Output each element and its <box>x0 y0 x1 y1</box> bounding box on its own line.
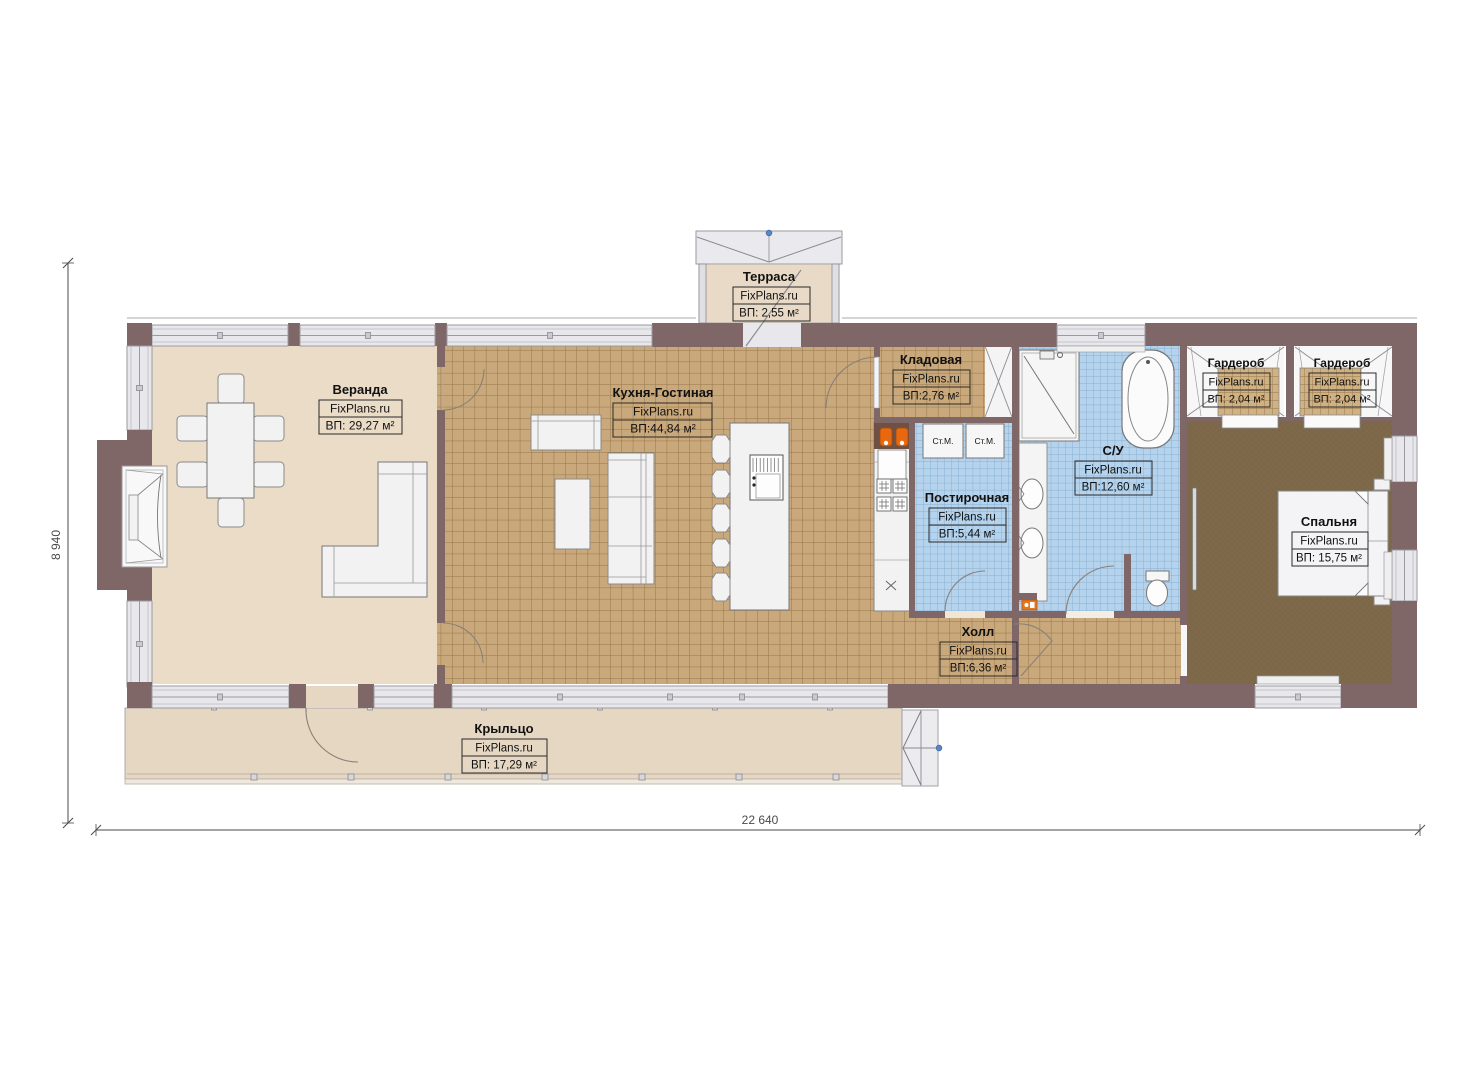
svg-text:ВП:44,84 м²: ВП:44,84 м² <box>630 422 696 436</box>
svg-text:Терраса: Терраса <box>743 269 796 284</box>
svg-text:Крыльцо: Крыльцо <box>474 721 533 736</box>
svg-text:FixPlans.ru: FixPlans.ru <box>330 402 390 416</box>
svg-text:ВП:2,76 м²: ВП:2,76 м² <box>903 391 960 403</box>
svg-text:Гардероб: Гардероб <box>1314 356 1371 370</box>
svg-text:Спальня: Спальня <box>1301 514 1357 529</box>
svg-text:ВП: 2,04 м²: ВП: 2,04 м² <box>1313 394 1370 406</box>
svg-text:FixPlans.ru: FixPlans.ru <box>1300 536 1358 548</box>
svg-text:Кухня-Гостиная: Кухня-Гостиная <box>612 385 713 400</box>
svg-text:FixPlans.ru: FixPlans.ru <box>1208 377 1263 389</box>
svg-text:FixPlans.ru: FixPlans.ru <box>1314 377 1369 389</box>
svg-text:FixPlans.ru: FixPlans.ru <box>902 374 960 386</box>
svg-text:FixPlans.ru: FixPlans.ru <box>938 512 996 524</box>
svg-text:ВП: 17,29 м²: ВП: 17,29 м² <box>471 760 537 772</box>
svg-text:8 940: 8 940 <box>49 530 63 560</box>
svg-text:С/У: С/У <box>1102 443 1124 458</box>
svg-text:Кладовая: Кладовая <box>900 352 962 367</box>
svg-text:Гардероб: Гардероб <box>1208 356 1265 370</box>
svg-text:FixPlans.ru: FixPlans.ru <box>633 405 693 419</box>
svg-text:Веранда: Веранда <box>332 382 388 397</box>
svg-text:Ст.М.: Ст.М. <box>933 436 954 446</box>
svg-text:Холл: Холл <box>962 624 995 639</box>
svg-text:ВП: 2,04 м²: ВП: 2,04 м² <box>1207 394 1264 406</box>
svg-text:ВП: 2,55 м²: ВП: 2,55 м² <box>739 308 799 320</box>
svg-text:Ст.М.: Ст.М. <box>975 436 996 446</box>
svg-text:ВП:12,60 м²: ВП:12,60 м² <box>1082 482 1145 494</box>
svg-text:FixPlans.ru: FixPlans.ru <box>475 743 533 755</box>
svg-text:ВП:5,44 м²: ВП:5,44 м² <box>939 529 996 541</box>
svg-text:ВП: 15,75 м²: ВП: 15,75 м² <box>1296 553 1362 565</box>
svg-text:FixPlans.ru: FixPlans.ru <box>740 291 798 303</box>
svg-text:22 640: 22 640 <box>742 813 779 827</box>
svg-text:ВП: 29,27 м²: ВП: 29,27 м² <box>326 419 395 433</box>
svg-text:FixPlans.ru: FixPlans.ru <box>1084 465 1142 477</box>
svg-text:FixPlans.ru: FixPlans.ru <box>949 646 1007 658</box>
svg-text:ВП:6,36 м²: ВП:6,36 м² <box>950 663 1007 675</box>
svg-text:Постирочная: Постирочная <box>925 490 1009 505</box>
